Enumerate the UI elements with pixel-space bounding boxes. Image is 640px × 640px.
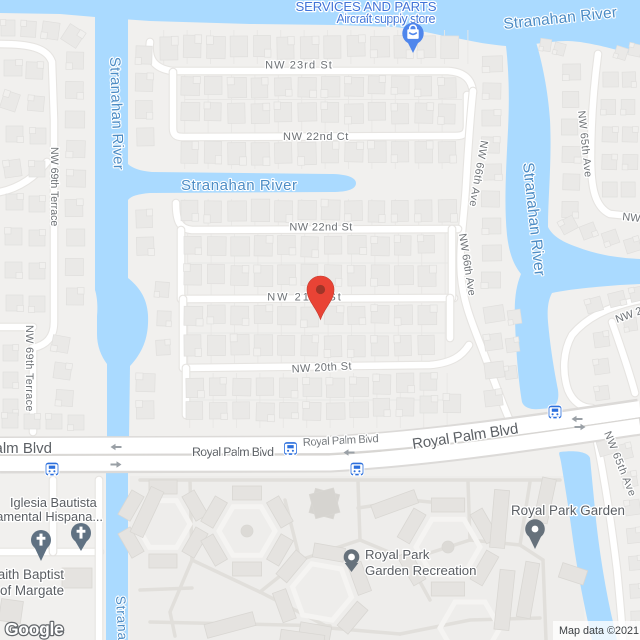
svg-text:Aircraft supply store: Aircraft supply store xyxy=(337,12,436,26)
svg-text:Google: Google xyxy=(5,619,64,639)
svg-text:Faith Baptistof Margate: Faith Baptistof Margate xyxy=(0,567,64,598)
svg-text:Iglesia BautistaFundamental Hi: Iglesia BautistaFundamental Hispana... xyxy=(0,495,103,524)
svg-text:NW 22nd St: NW 22nd St xyxy=(289,222,352,234)
svg-text:Map data ©2021: Map data ©2021 xyxy=(559,625,639,637)
svg-text:Royal Palm Blvd: Royal Palm Blvd xyxy=(0,440,52,457)
svg-text:NW 69th Terrace: NW 69th Terrace xyxy=(23,325,35,412)
svg-text:Royal Palm Blvd: Royal Palm Blvd xyxy=(192,445,274,459)
svg-text:NW 22nd Ct: NW 22nd Ct xyxy=(283,131,349,143)
svg-text:Stranahan River: Stranahan River xyxy=(181,177,297,194)
svg-text:NW 69th Terrace: NW 69th Terrace xyxy=(48,147,60,226)
svg-text:Royal Park Garden: Royal Park Garden xyxy=(511,503,625,518)
svg-text:NW 23rd St: NW 23rd St xyxy=(265,60,333,72)
